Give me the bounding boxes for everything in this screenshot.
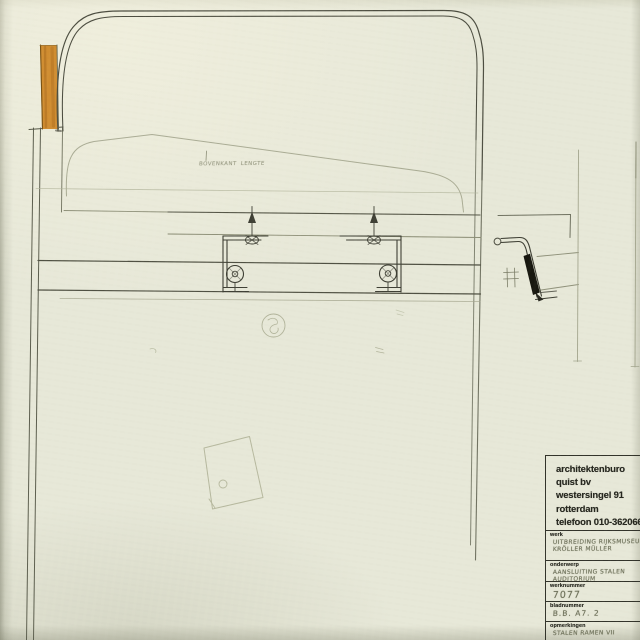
field-werknummer: werknummer 7077 (546, 581, 640, 601)
field-value-handwritten: B.B. A7. 2 (553, 609, 640, 617)
gate-post-detail (494, 237, 557, 301)
field-value-handwritten: kröller müller (553, 545, 640, 553)
title-block: architektenburo quist bv westersingel 91… (545, 455, 640, 640)
plan-drawing (0, 0, 640, 640)
anchor-arrow-icon (370, 212, 378, 224)
field-onderwerp: onderwerp aansluiting stalen auditorium (546, 560, 640, 581)
field-value-handwritten: 7077 (552, 589, 640, 601)
plan-annotation: bovenkant lengte (199, 161, 310, 168)
firm-name-line: architektenburo (556, 463, 640, 476)
firm-street-line: westersingel 91 (556, 489, 640, 502)
field-werk: werk uitbreiding rijksmuseum kröller mül… (546, 530, 640, 560)
firm-city-line: rotterdam (556, 503, 640, 516)
hatch-symbol (504, 268, 519, 287)
field-bladnummer: bladnummer B.B. A7. 2 (546, 601, 640, 621)
field-value-handwritten: stalen ramen VII (553, 629, 640, 637)
field-opmerkingen: opmerkingen stalen ramen VII (546, 621, 640, 640)
left-edge-lines (27, 127, 64, 640)
right-wall-lines (574, 142, 640, 367)
firm-phone-line: telefoon 010-362066 (556, 516, 640, 529)
right-steel-bracket-detail (340, 207, 401, 293)
firm-name-line: quist bv (556, 476, 640, 489)
blueprint-sheet: bovenkant lengte architektenburo quist b… (0, 0, 640, 640)
pencil-sketch-marks (150, 151, 404, 509)
inner-guideline (66, 135, 463, 213)
canopy-outline (57, 11, 483, 561)
left-steel-bracket-detail (223, 207, 268, 293)
firm-address-block: architektenburo quist bv westersingel 91… (546, 456, 640, 530)
steel-post-section (524, 254, 540, 295)
